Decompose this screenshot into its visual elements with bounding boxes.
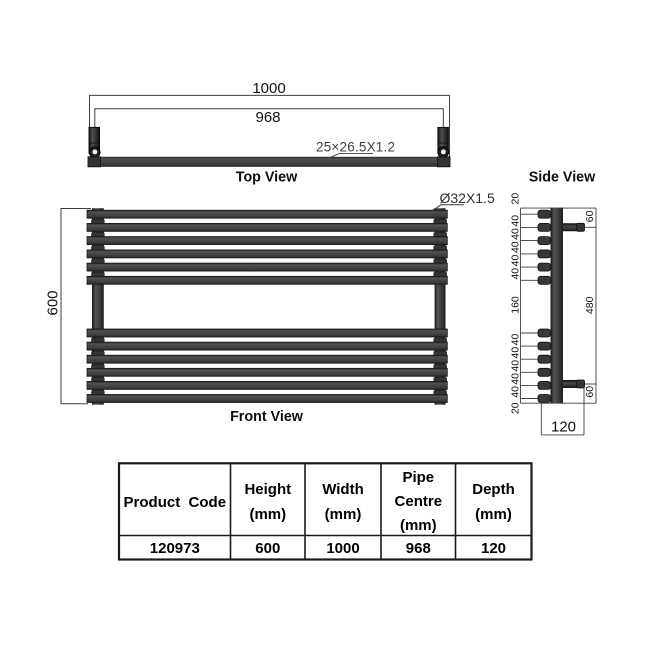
svg-text:(mm): (mm) (249, 506, 286, 523)
svg-text:480: 480 (584, 296, 596, 314)
svg-text:25×26.5X1.2: 25×26.5X1.2 (316, 140, 395, 155)
svg-text:(mm): (mm) (475, 506, 512, 523)
svg-text:Width: Width (322, 481, 364, 498)
svg-text:Pipe: Pipe (402, 469, 434, 486)
svg-text:40: 40 (510, 241, 522, 253)
svg-text:120973: 120973 (150, 540, 200, 557)
svg-text:40: 40 (510, 215, 522, 227)
svg-text:40: 40 (510, 228, 522, 240)
svg-text:40: 40 (510, 334, 522, 346)
svg-text:40: 40 (510, 268, 522, 280)
svg-text:Centre: Centre (395, 493, 443, 510)
svg-text:968: 968 (255, 109, 280, 126)
svg-text:Height: Height (244, 481, 291, 498)
svg-text:120: 120 (551, 419, 576, 436)
svg-text:Ø32X1.5: Ø32X1.5 (440, 190, 495, 206)
svg-text:40: 40 (510, 360, 522, 372)
svg-text:(mm): (mm) (325, 506, 362, 523)
svg-text:160: 160 (510, 296, 522, 314)
svg-text:1000: 1000 (326, 540, 359, 557)
svg-text:600: 600 (255, 540, 280, 557)
svg-text:40: 40 (510, 386, 522, 398)
svg-text:40: 40 (510, 373, 522, 385)
svg-text:120: 120 (481, 540, 506, 557)
svg-text:Top View: Top View (236, 170, 298, 186)
svg-text:968: 968 (406, 540, 431, 557)
svg-text:600: 600 (45, 290, 62, 315)
svg-text:20: 20 (510, 193, 522, 205)
svg-text:Side View: Side View (529, 170, 596, 186)
svg-text:60: 60 (584, 386, 596, 398)
svg-text:Depth: Depth (472, 481, 515, 498)
svg-text:60: 60 (584, 210, 596, 222)
svg-text:40: 40 (510, 347, 522, 359)
svg-text:Product Code: Product Code (124, 494, 227, 511)
svg-text:40: 40 (510, 255, 522, 267)
svg-text:20: 20 (510, 402, 522, 414)
svg-text:(mm): (mm) (400, 517, 437, 534)
svg-text:1000: 1000 (252, 80, 285, 97)
svg-text:Front View: Front View (230, 409, 304, 425)
